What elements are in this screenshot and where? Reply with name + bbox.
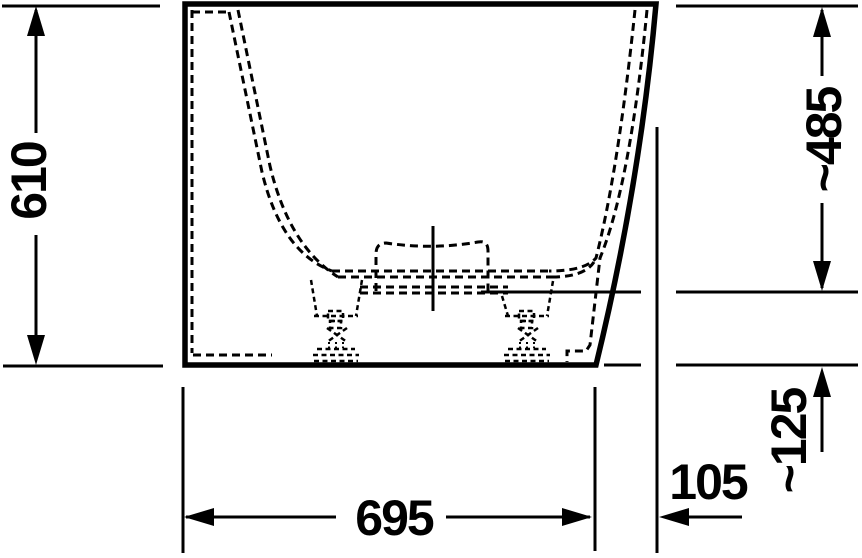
arrow-left-icon — [184, 508, 214, 526]
tub-inner-profile — [192, 10, 647, 362]
dimension-overall-height: 610 — [1, 6, 163, 366]
support-foot-left — [311, 280, 362, 361]
dimension-rim-to-waterline: ~485 — [676, 6, 858, 292]
tub-outline — [185, 4, 656, 365]
arrow-right-icon — [562, 508, 592, 526]
foot-bracket-side-left — [502, 296, 508, 316]
bathtub-technical-drawing: 610 ~485 ~125 695 105 — [0, 0, 862, 558]
foot-bracket-side-right — [356, 280, 362, 316]
tub-outer-shell-outline — [185, 4, 656, 365]
dimension-top-overhang: 105 — [657, 127, 748, 553]
arrow-left-icon — [659, 508, 689, 526]
foot-bracket-side-left — [311, 280, 317, 316]
bowl-profile-left-outer — [229, 12, 332, 271]
dimension-label-695: 695 — [355, 490, 434, 546]
foot-clamp-lower — [330, 321, 341, 328]
foot-bracket-side-right — [547, 281, 553, 316]
dimension-waterline-to-floor: ~125 — [761, 367, 831, 493]
dimension-base-width: 695 — [183, 387, 595, 553]
bowl-profile-left-inner — [238, 10, 338, 277]
foot-clamp-lower — [521, 321, 532, 328]
dimension-label-125: ~125 — [761, 387, 817, 493]
arrow-up-icon — [27, 6, 45, 36]
arrow-up-icon — [813, 7, 831, 37]
foot-stem-chevron-right — [528, 328, 538, 342]
dimension-label-105: 105 — [669, 454, 748, 510]
foot-stem-chevron-right — [337, 328, 347, 342]
arrow-down-icon — [27, 335, 45, 365]
arrow-down-icon — [813, 261, 831, 291]
technical-drawing-page: 610 ~485 ~125 695 105 — [0, 0, 862, 558]
dimension-label-485: ~485 — [796, 86, 852, 192]
dimension-label-610: 610 — [1, 142, 57, 220]
